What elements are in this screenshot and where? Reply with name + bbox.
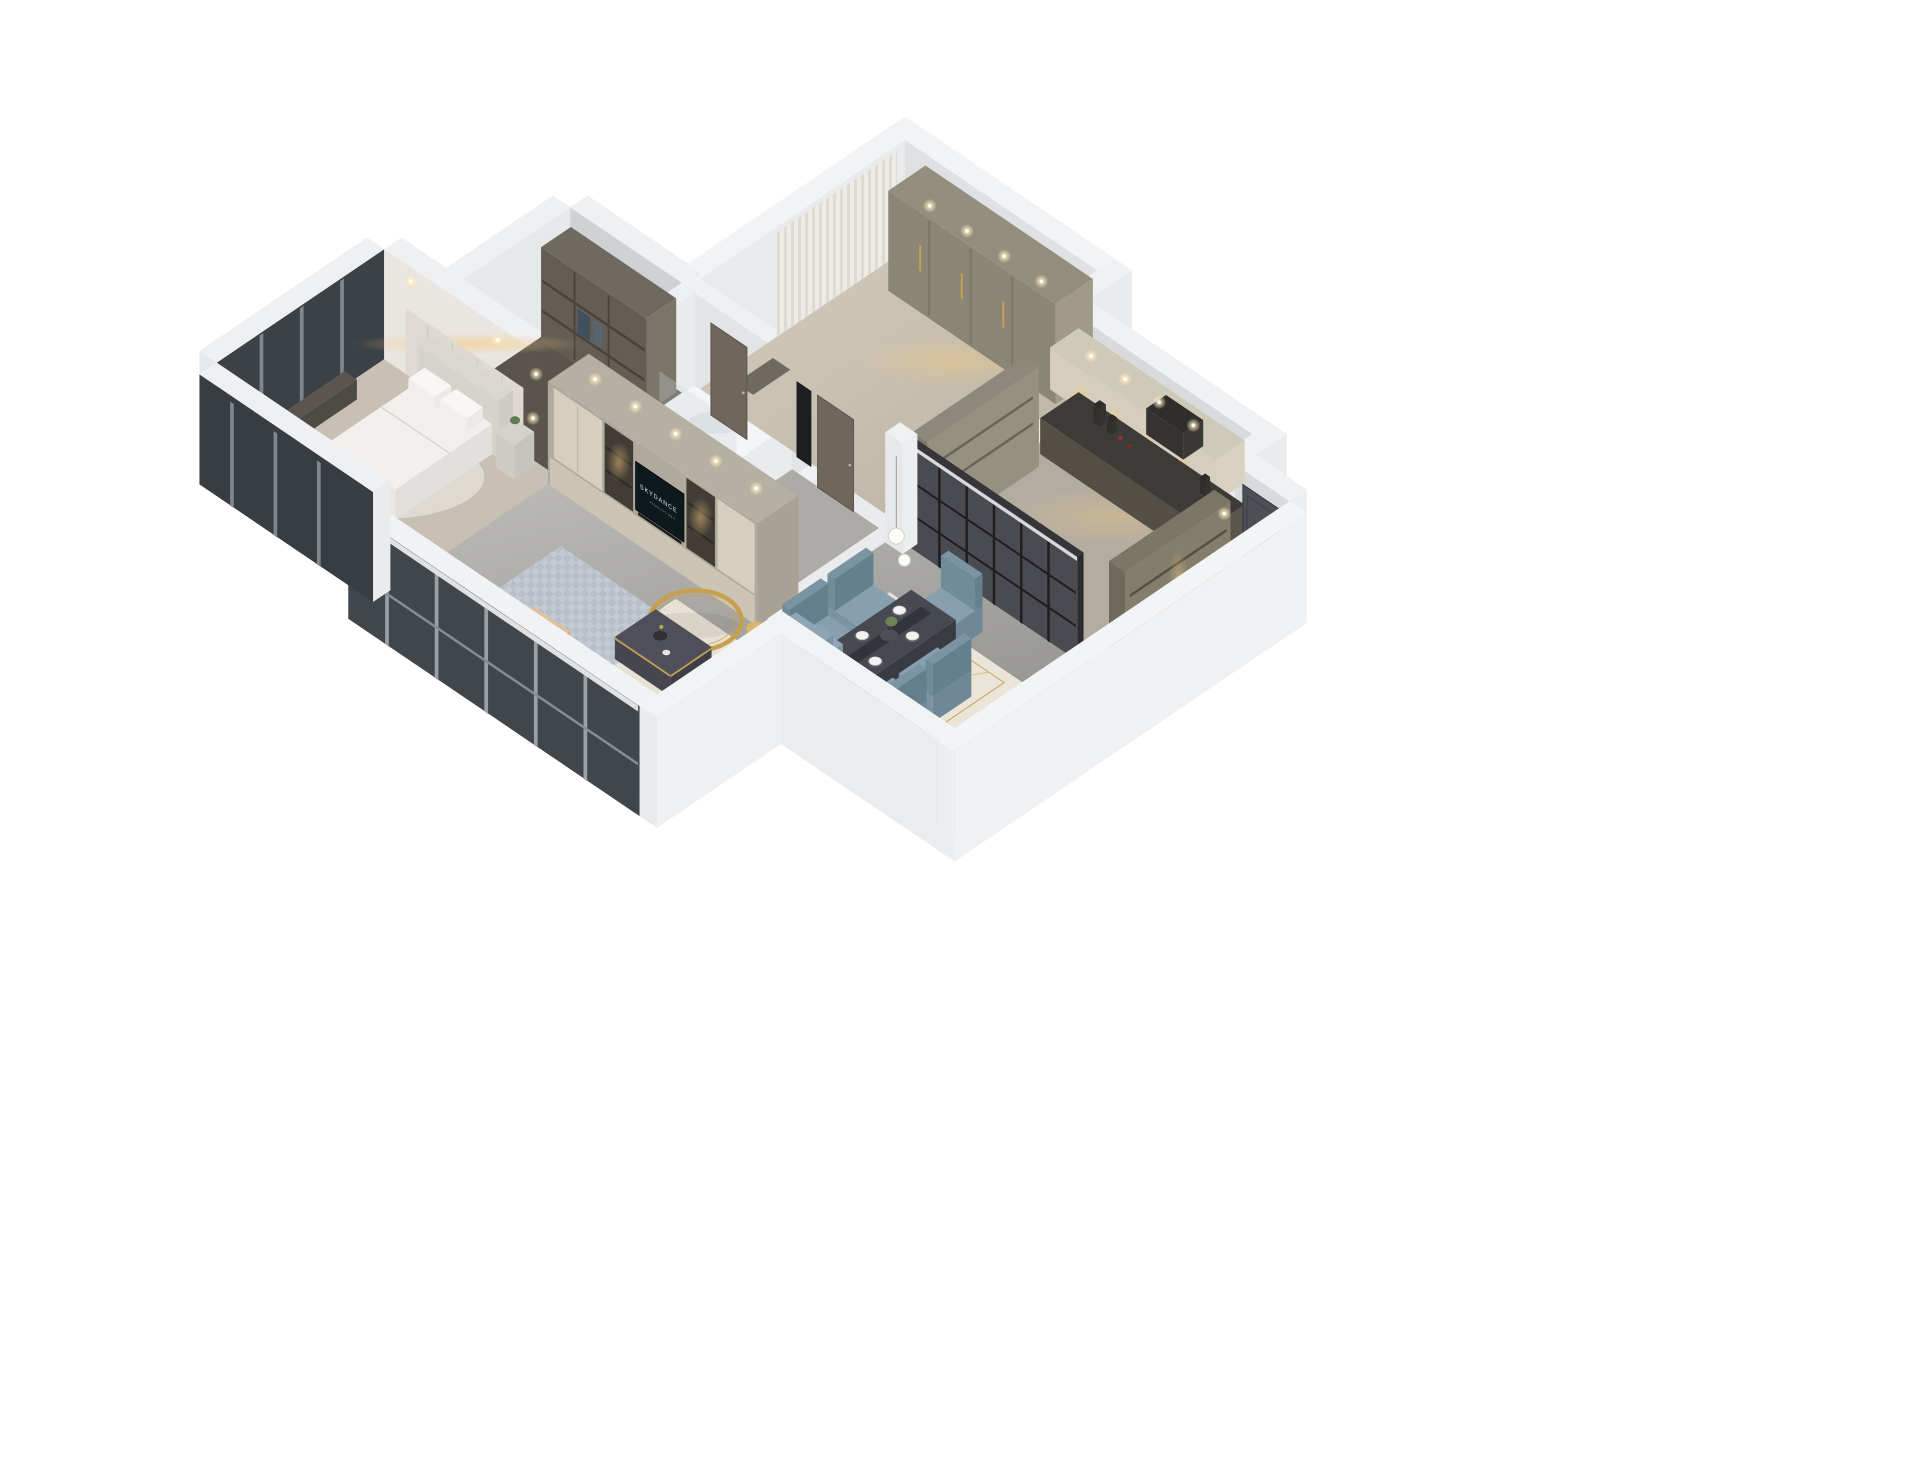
downlight bbox=[496, 338, 500, 342]
wardrobe-seam bbox=[928, 220, 930, 315]
coffee-table-book bbox=[662, 650, 670, 656]
partition-frame bbox=[993, 502, 995, 606]
kitchen-red-jar bbox=[1118, 436, 1123, 440]
partition-frame bbox=[1020, 520, 1022, 624]
dinner-plate bbox=[906, 632, 918, 640]
downlight bbox=[1157, 400, 1161, 404]
downlight bbox=[1192, 424, 1196, 428]
table-centerpiece-tray bbox=[880, 629, 898, 641]
flowers bbox=[885, 616, 897, 626]
downlight bbox=[965, 229, 969, 233]
dining-pendant-lamp bbox=[898, 554, 910, 566]
downlight bbox=[714, 459, 718, 463]
nightstand-plant bbox=[510, 416, 520, 424]
downlight bbox=[1002, 254, 1006, 258]
dinner-plate bbox=[869, 657, 881, 665]
apartment-3d-floorplan-page: SKYDANCEPRODUCTIONS bbox=[0, 0, 1920, 1484]
wardrobe-seam bbox=[970, 248, 972, 343]
master-bottom-mullion bbox=[230, 402, 234, 509]
coffee-table-tray bbox=[653, 631, 667, 641]
dinner-plate bbox=[856, 631, 868, 639]
hallway-mirror bbox=[797, 381, 812, 467]
dining-chair-back bbox=[975, 574, 982, 611]
entry-right-wall bbox=[937, 740, 954, 862]
downlight bbox=[409, 280, 413, 284]
dining-chair-back bbox=[828, 574, 835, 611]
master-bottom-window-wall bbox=[373, 480, 390, 602]
closet-downlight bbox=[534, 372, 538, 376]
dinner-plate bbox=[893, 606, 905, 614]
dining-pendant-lamp bbox=[888, 528, 904, 544]
wardrobe-handle bbox=[919, 245, 921, 272]
tv-shelf-glow bbox=[607, 442, 631, 482]
partition-frame bbox=[938, 465, 940, 569]
closet-downlight bbox=[531, 416, 535, 420]
downlight bbox=[593, 377, 597, 381]
master-bottom-mullion bbox=[274, 431, 278, 538]
downlight bbox=[634, 405, 638, 409]
kitchen-bottle bbox=[1200, 477, 1205, 496]
door-handle bbox=[848, 464, 851, 467]
downlight bbox=[674, 432, 678, 436]
living-side-wall bbox=[640, 706, 657, 828]
downlight bbox=[754, 487, 758, 491]
partition-frame bbox=[1047, 539, 1049, 643]
wardrobe-seam bbox=[1011, 277, 1013, 372]
wardrobe-handle bbox=[961, 273, 963, 300]
coffee-table-decor bbox=[659, 625, 663, 629]
downlight bbox=[1223, 512, 1227, 516]
downlight bbox=[1089, 354, 1093, 358]
kitchen-red-jar bbox=[1127, 444, 1131, 447]
wardrobe-handle bbox=[1002, 301, 1004, 328]
tv-wall-door-seam bbox=[577, 406, 578, 473]
downlight bbox=[928, 204, 932, 208]
flower-vase bbox=[888, 626, 893, 630]
door-handle bbox=[742, 392, 745, 395]
downlight bbox=[1123, 377, 1127, 381]
tv-shelf-glow bbox=[689, 497, 713, 537]
master-bottom-mullion bbox=[317, 460, 321, 567]
downlight bbox=[1040, 280, 1044, 284]
floorplan-svg: SKYDANCEPRODUCTIONS bbox=[0, 0, 1920, 1484]
